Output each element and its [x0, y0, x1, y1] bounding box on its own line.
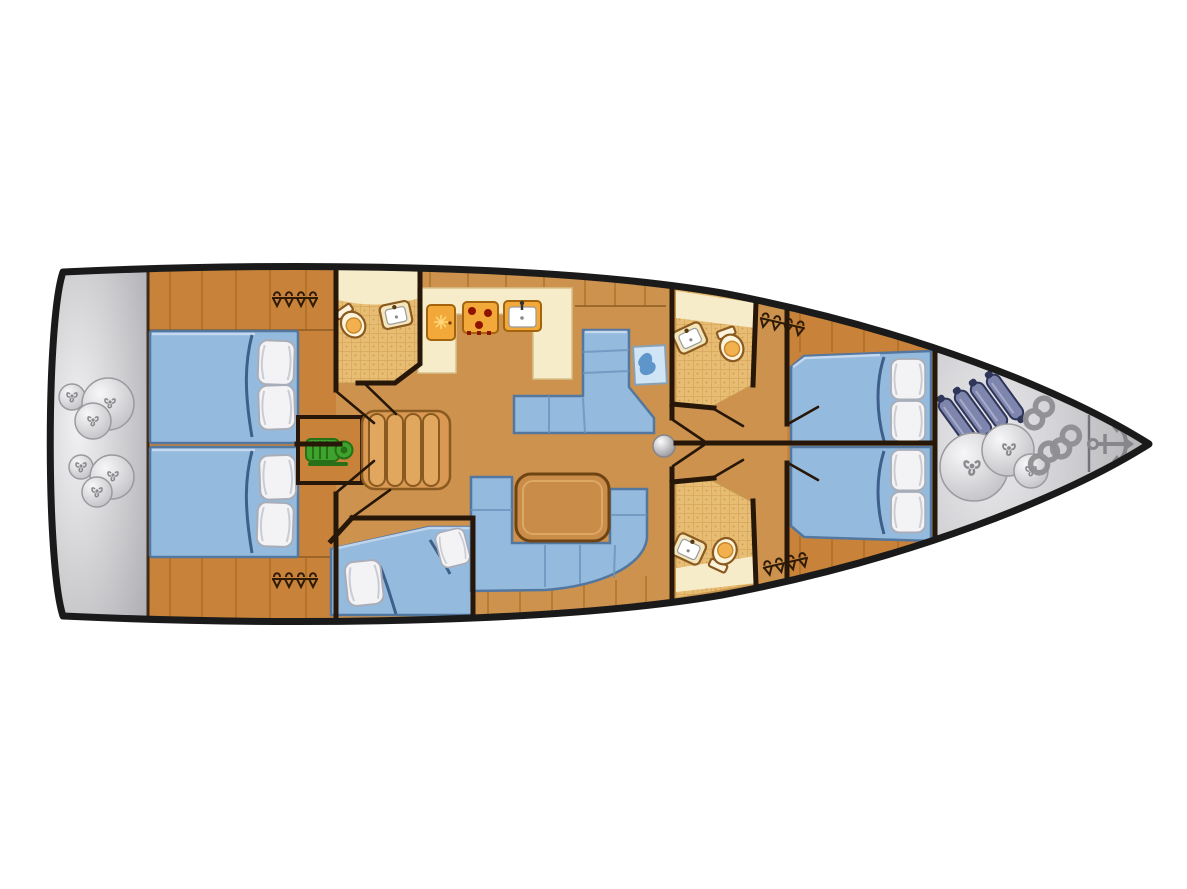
forward-head-bottom	[670, 481, 756, 598]
deck-hatch	[653, 435, 675, 457]
forward-head-top	[671, 289, 756, 406]
burner	[475, 321, 483, 329]
head-counter	[338, 270, 420, 305]
fridge-icon	[427, 305, 455, 340]
stove-icon	[463, 302, 498, 335]
chart-table	[633, 345, 667, 385]
washbasin-icon	[379, 300, 413, 330]
step	[369, 414, 385, 486]
galley-sink-icon	[504, 301, 541, 331]
burner	[484, 309, 492, 317]
interior	[40, 255, 1155, 635]
forward-cabin-top-bed	[791, 351, 931, 443]
aft-cabin-bottom-bed	[150, 447, 298, 557]
aft-head	[332, 270, 420, 383]
burner	[468, 307, 476, 315]
yacht-layout-plan	[0, 0, 1187, 889]
step	[423, 414, 439, 486]
engine-compartment	[298, 417, 362, 483]
salon-table	[516, 474, 609, 541]
aft-cabin-top-bed	[150, 331, 298, 443]
step	[387, 414, 403, 486]
forward-cabin-bottom-bed	[791, 447, 931, 541]
step	[405, 414, 421, 486]
